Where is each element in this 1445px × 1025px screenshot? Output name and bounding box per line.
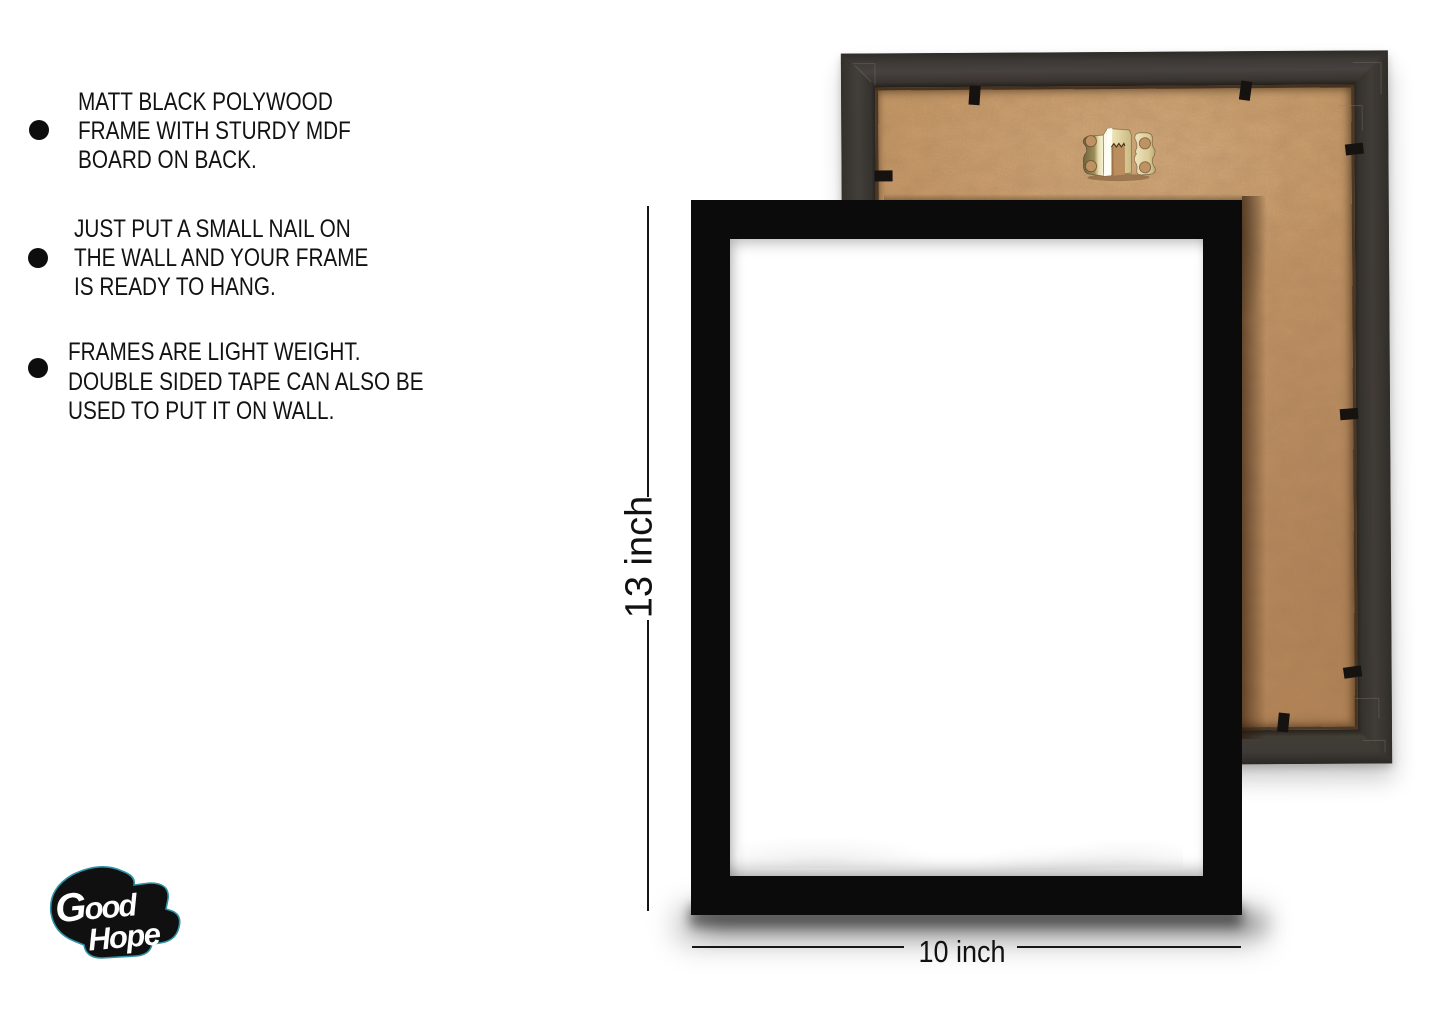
svg-text:Hope: Hope (87, 916, 163, 957)
